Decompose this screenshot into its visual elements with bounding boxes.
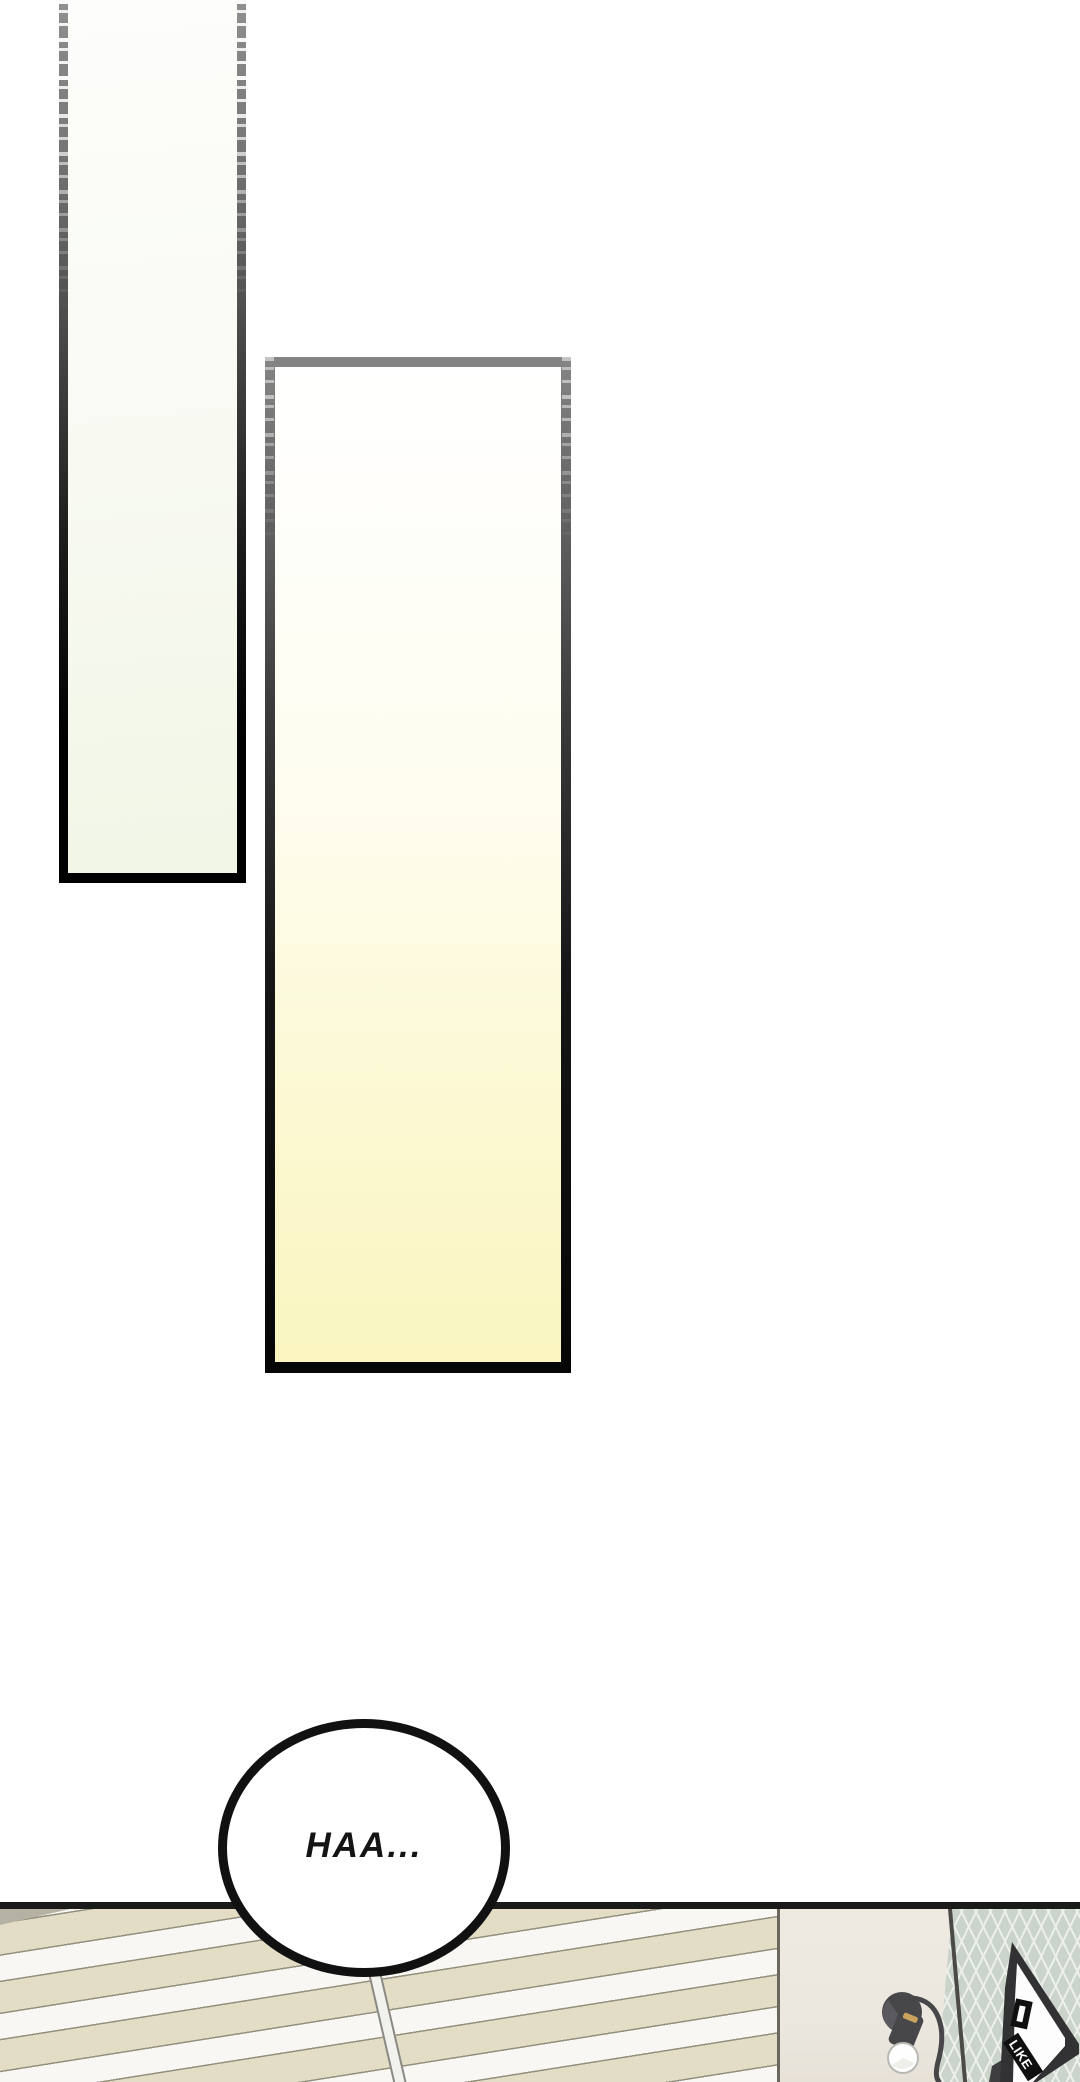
panel-tall-middle xyxy=(265,357,571,1373)
panel-tall-left-art xyxy=(68,0,237,873)
speech-bubble: HAA... xyxy=(218,1719,510,1977)
scene-top-border xyxy=(0,1902,1080,1909)
panel-border-distress-right xyxy=(562,357,571,557)
wall-lamp xyxy=(882,1992,942,2082)
panel-border-distress-left xyxy=(59,0,68,320)
panel-border-distress-right xyxy=(237,0,246,320)
comic-page: LIKE HAA... xyxy=(0,0,1080,2082)
frame-shadow xyxy=(989,2060,1002,2082)
panel-tall-left xyxy=(59,0,246,883)
bottom-scene: LIKE xyxy=(0,1909,1080,2082)
panel-border-distress-left xyxy=(265,357,274,557)
panel-tall-middle-art xyxy=(275,367,561,1362)
scene-decor: LIKE xyxy=(0,1909,1080,2082)
speech-bubble-text: HAA... xyxy=(306,1826,423,1866)
picture-frame: LIKE xyxy=(989,1942,1079,2082)
